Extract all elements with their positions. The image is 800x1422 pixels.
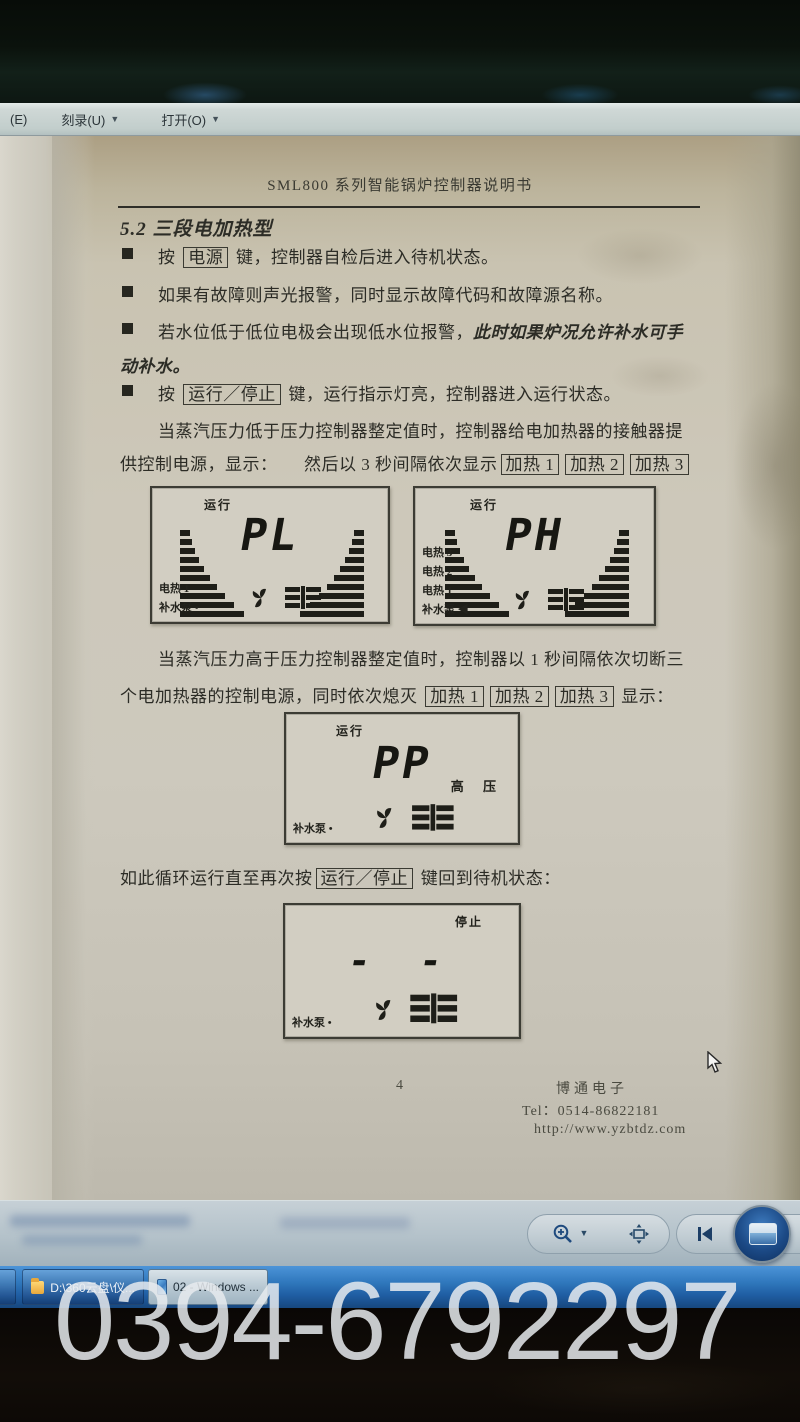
watermark-phone-number: 0394-6792297 [54,1258,740,1385]
slideshow-icon [749,1223,777,1245]
menu-label: 打开(O) [161,110,206,129]
bullet-marker [122,385,133,396]
footer-url: http://www.yzbtdz.com [534,1122,686,1138]
menu-item-email-partial[interactable]: (E) [0,103,37,135]
para2-line1: 当蒸汽压力高于压力控制器整定值时，控制器以 1 秒间隔依次切断三 [158,645,684,670]
lcd-left-labels: 电热 1 补水泵 • [159,580,199,615]
pump-indicator-label: 补水泵 ◀ [422,601,469,617]
fan-icon [372,804,400,837]
document-page: SML800 系列智能锅炉控制器说明书 5.2 三段电加热型 按 电源 键，控制… [0,136,800,1200]
lcd-left-labels: 电热 3 电热 2 电热 1 补水泵 ◀ [422,544,469,617]
menu-label: (E) [10,112,27,127]
header-rule [118,206,700,208]
previous-button[interactable] [690,1219,720,1249]
viewer-menubar: (E) 刻录(U) ▼ 打开(O) ▼ [0,103,800,136]
heater-element-icon [284,585,324,616]
bullet-1: 按 电源 键，控制器自检后进入待机状态。 [158,243,499,268]
para1-line1: 当蒸汽压力低于压力控制器整定值时，控制器给电加热器的接触器提 [158,417,683,442]
section-title: 5.2 三段电加热型 [120,214,273,241]
blurred-status-text [280,1217,410,1229]
heater-element-icon [410,803,458,838]
doc-header-title: SML800 系列智能锅炉控制器说明书 [0,174,800,195]
bullet-4: 按 运行／停止 键，运行指示灯亮，控制器进入运行状态。 [158,380,621,405]
lcd-status-label: 运行 [336,722,364,739]
screen-photo: (E) 刻录(U) ▼ 打开(O) ▼ SML800 系列智能锅炉控制器说明书 … [0,0,800,1422]
heater-element-icon [547,587,587,618]
page-crease-shadow [52,136,86,1200]
bullet-marker [122,286,133,297]
heater-indicator-label: 电热 3 [422,544,469,560]
slideshow-button[interactable] [733,1205,791,1263]
lcd-display-pl: 运行 PL 电热 1 补水泵 • [150,486,390,624]
lcd-display-stop: 停止 - - 补水泵 • [283,903,521,1039]
bullet-marker [122,248,133,259]
fan-icon [248,585,274,616]
water-level-bars-icon [445,530,629,618]
lcd-display-ph: 运行 PH 电热 3 电热 2 电热 1 补水泵 ◀ [413,486,656,626]
lcd-status-label: 停止 [455,913,483,930]
footer-tel: Tel：0514-86822181 [522,1100,659,1120]
mouse-cursor [706,1051,726,1080]
zoom-button[interactable] [548,1219,578,1249]
heater-indicator-label: 电热 1 [159,580,199,596]
pump-indicator-label: 补水泵 • [293,820,333,836]
actual-size-button[interactable] [624,1219,654,1249]
viewer-toolbar: ▼ [0,1200,800,1266]
menu-item-burn[interactable]: 刻录(U) ▼ [51,103,129,135]
chevron-down-icon: ▼ [211,114,220,124]
menu-item-open[interactable]: 打开(O) ▼ [151,103,230,135]
monitor-top-bezel [0,0,800,103]
high-pressure-label: 高 压 [451,776,504,795]
para1-line2: 供控制电源，显示： 然后以 3 秒间隔依次显示加热 1加热 2加热 3 [120,450,692,475]
pump-indicator-label: 补水泵 • [292,1014,332,1030]
heater-element-icon [409,992,461,1031]
fan-icon [511,587,537,618]
lcd-value: - - [281,941,522,982]
folder-icon [31,1281,44,1294]
zoom-dropdown-caret[interactable]: ▼ [578,1227,590,1239]
bullet-3: 若水位低于低位电极会出现低水位报警，此时如果炉况允许补水可手 [158,318,683,343]
blurred-status-text [10,1215,190,1227]
chevron-down-icon: ▼ [110,114,119,124]
para3: 如此循环运行直至再次按运行／停止 键回到待机状态： [120,864,561,889]
bullet-2: 如果有故障则声光报警，同时显示故障代码和故障源名称。 [158,281,613,306]
lcd-left-labels: 补水泵 • [293,820,333,836]
fan-icon [371,996,399,1029]
lcd-left-labels: 补水泵 • [292,1014,332,1030]
footer-company: 博通电子 [556,1078,628,1098]
lcd-display-pp: 运行 PP 高 压 补水泵 • [284,712,520,845]
menu-label: 刻录(U) [61,110,105,129]
bullet-3-continuation: 动补水。 [120,352,190,377]
bullet-marker [122,323,133,334]
taskbar-button-partial[interactable] [0,1269,16,1305]
heater-indicator-label: 电热 2 [422,563,469,579]
page-number: 4 [396,1078,404,1094]
heater-indicator-label: 电热 1 [422,582,469,598]
pump-indicator-label: 补水泵 • [159,599,199,615]
blurred-status-text [22,1235,142,1245]
para2-line2: 个电加热器的控制电源，同时依次熄灭 加热 1加热 2加热 3 显示： [120,682,674,707]
